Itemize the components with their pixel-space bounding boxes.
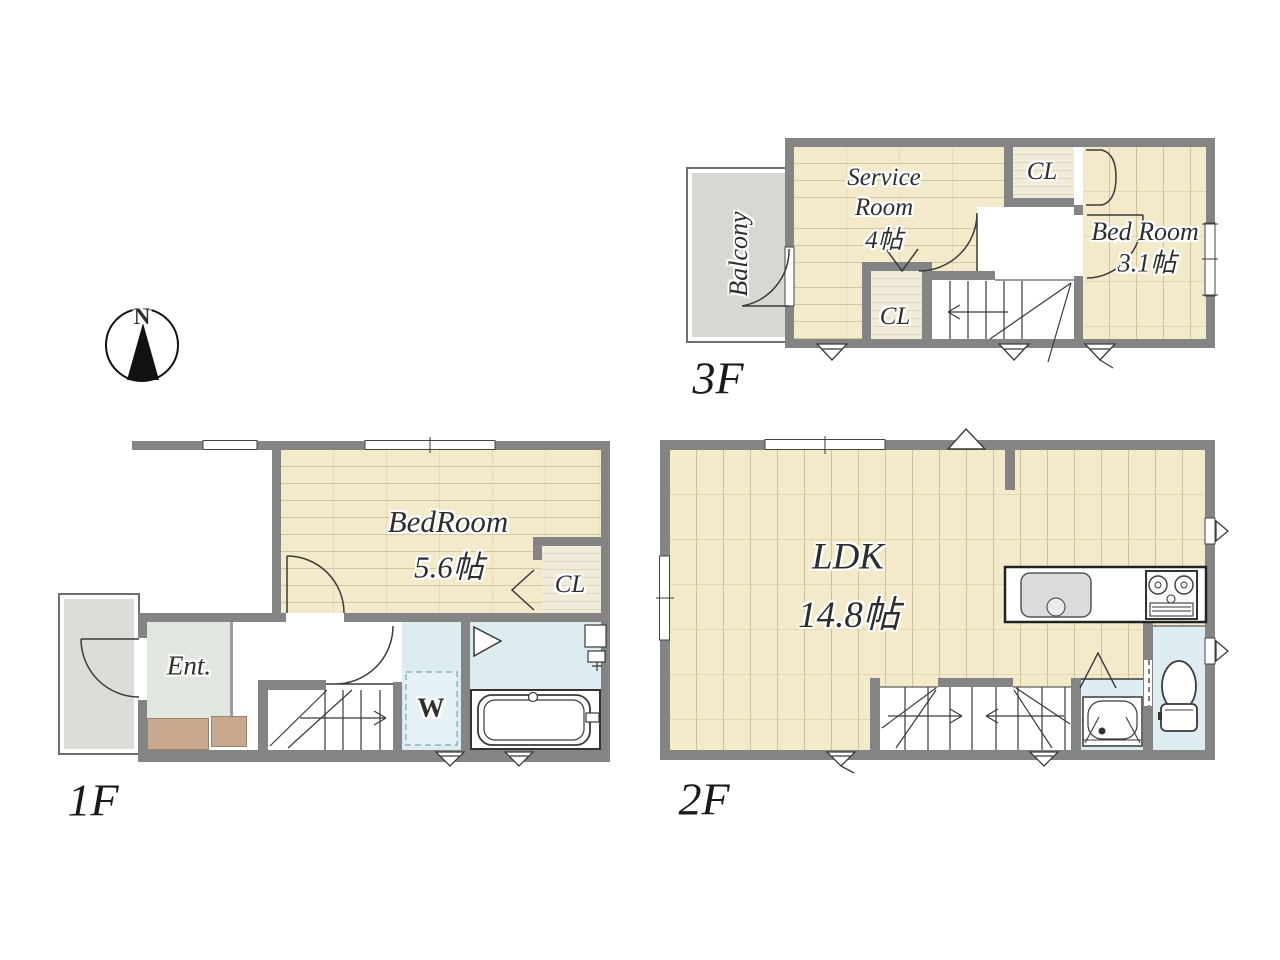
wall bbox=[922, 271, 995, 280]
wall bbox=[785, 147, 794, 348]
floor-plan-canvas: N Balcony Service Room 4帖 CL CL Bed Room… bbox=[0, 0, 1280, 960]
wall bbox=[138, 613, 286, 622]
washer-room-floor bbox=[402, 622, 461, 750]
wall bbox=[862, 271, 871, 339]
floor1-label: 1F bbox=[67, 774, 118, 827]
wall bbox=[1206, 147, 1215, 348]
wall bbox=[1143, 622, 1153, 750]
wall bbox=[660, 440, 670, 760]
bedroom3f-size: 3.1帖 bbox=[1118, 243, 1177, 280]
bedroom1f-label: BedRoom bbox=[388, 504, 509, 540]
wall bbox=[132, 441, 610, 450]
wall bbox=[601, 441, 610, 762]
wall bbox=[533, 546, 542, 560]
wall bbox=[1074, 276, 1083, 339]
wall bbox=[1074, 205, 1083, 215]
wall bbox=[870, 678, 880, 750]
wall bbox=[258, 680, 268, 750]
wall bbox=[785, 138, 1215, 147]
wall bbox=[258, 680, 326, 690]
shoe-cabinet bbox=[211, 716, 247, 747]
shoe-cabinet bbox=[147, 718, 209, 750]
porch-floor bbox=[64, 599, 134, 749]
wall bbox=[660, 750, 1215, 760]
toilet-room-floor bbox=[1153, 626, 1205, 750]
washer-label: W bbox=[418, 693, 445, 724]
wall bbox=[1071, 678, 1081, 750]
entrance-porch bbox=[58, 593, 140, 755]
closet-label: CL bbox=[1027, 158, 1058, 186]
ldk-label: LDK bbox=[812, 536, 884, 579]
entrance-step-edge bbox=[230, 622, 233, 718]
ldk-size: 14.8帖 bbox=[798, 584, 900, 638]
service-room-floor bbox=[794, 271, 862, 339]
wall bbox=[1005, 450, 1015, 490]
wall bbox=[393, 682, 402, 750]
bedroom1f-size: 5.6帖 bbox=[414, 542, 484, 587]
wall bbox=[1004, 198, 1074, 207]
wall bbox=[862, 262, 932, 271]
floor3-label: 3F bbox=[692, 352, 743, 405]
closet-label: CL bbox=[555, 571, 586, 599]
wall bbox=[272, 450, 281, 613]
hall-floor bbox=[977, 207, 1074, 280]
compass-north-label: N bbox=[134, 304, 151, 330]
service-room-size: 4帖 bbox=[865, 220, 903, 256]
service-room-label: Room bbox=[855, 194, 913, 222]
entrance-label: Ent. bbox=[167, 651, 211, 682]
wall bbox=[344, 613, 610, 622]
wall bbox=[1205, 440, 1215, 760]
wall bbox=[138, 750, 610, 762]
floor2-label: 2F bbox=[678, 773, 729, 826]
wall bbox=[533, 537, 610, 546]
stairs3f-floor bbox=[932, 280, 1074, 339]
wall bbox=[785, 339, 1215, 348]
bathroom-floor bbox=[470, 622, 601, 750]
service-room-label: Service bbox=[847, 164, 921, 192]
washbasin-room-floor bbox=[1081, 679, 1143, 750]
balcony-label: Balcony bbox=[724, 211, 754, 296]
closet-label: CL bbox=[880, 303, 911, 331]
wall bbox=[461, 622, 470, 750]
stairs2f-floor bbox=[880, 687, 1071, 750]
wall bbox=[938, 678, 1013, 687]
wall bbox=[922, 271, 932, 339]
wall bbox=[660, 440, 1215, 450]
wall bbox=[138, 613, 147, 762]
